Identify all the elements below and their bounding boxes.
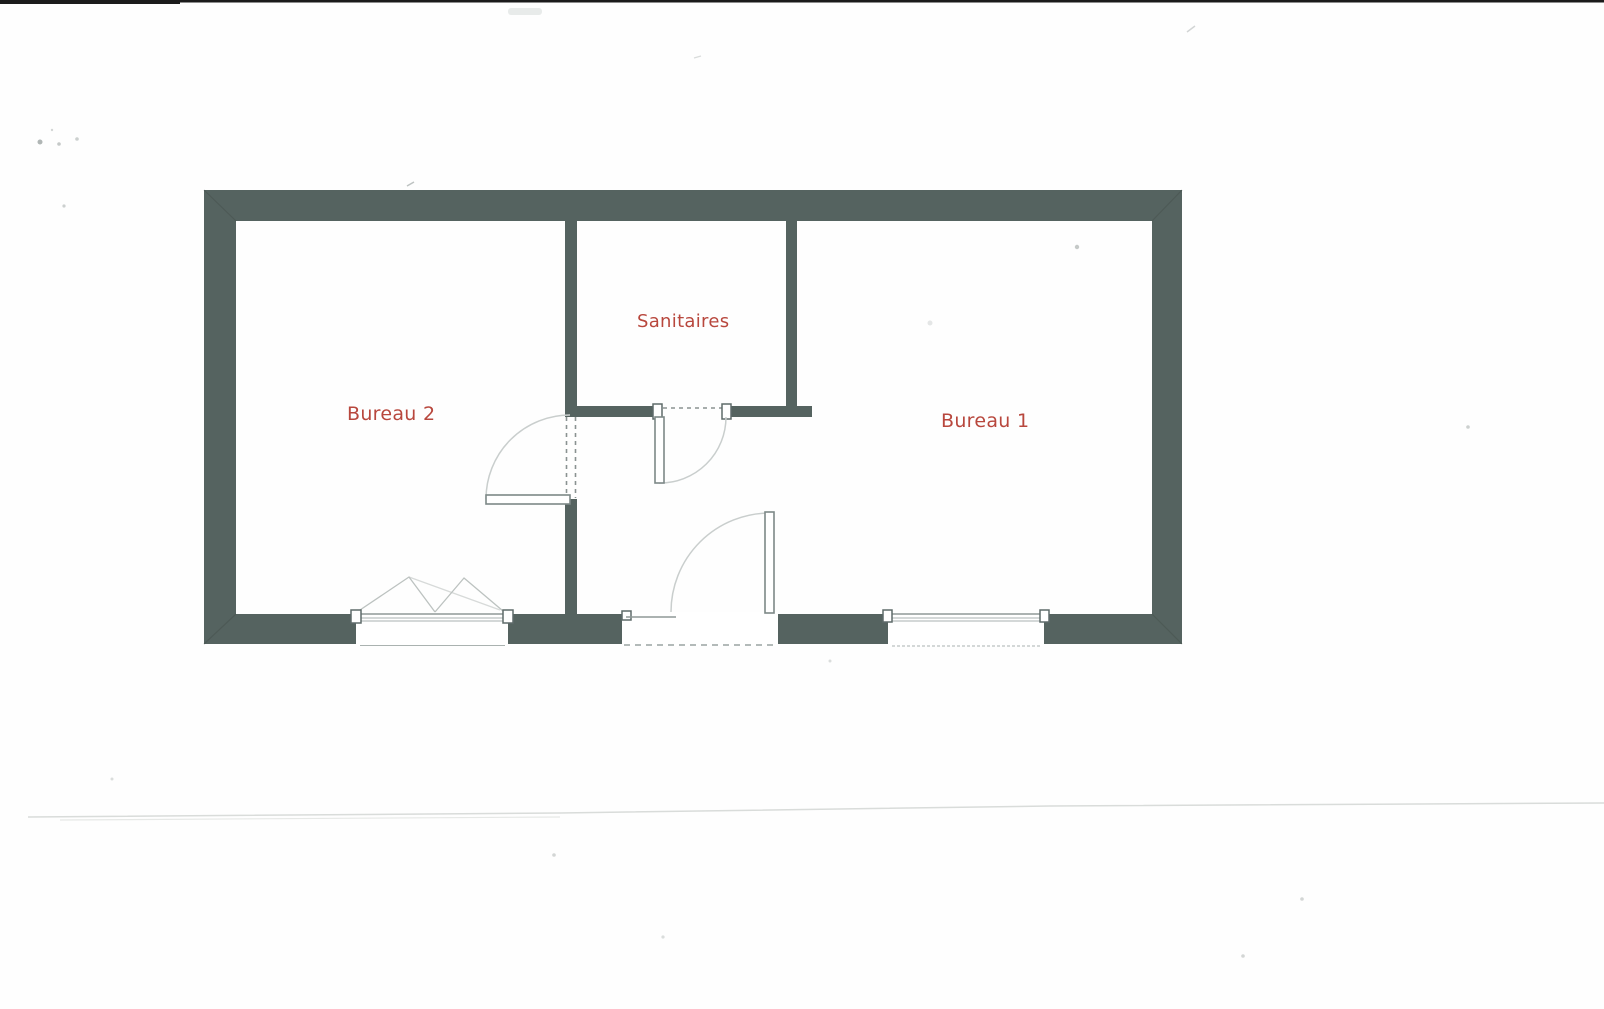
sanitaires-bottom-wall-right [726, 406, 812, 417]
entrance-door-leaf [765, 512, 774, 613]
window-jamb-right [1040, 610, 1049, 622]
scanned-page: Bureau 2 Sanitaires Bureau 1 [0, 0, 1604, 1009]
interior-wall-left-lower [565, 499, 577, 614]
entrance-door-swing-arc [671, 513, 770, 612]
sanitaires-door-leaf [655, 417, 664, 483]
entrance-jamb-left [622, 611, 631, 620]
scan-artifacts [0, 0, 1604, 958]
bureau-2-door-swing-arc [486, 415, 570, 499]
room-label-bureau-1: Bureau 1 [941, 410, 1029, 432]
sanitaires-door [653, 404, 731, 483]
floor-plan-drawing [0, 0, 1604, 1009]
room-label-sanitaires: Sanitaires [637, 311, 729, 332]
bottom-wall-openings [356, 612, 1044, 646]
sanitaires-right-wall [786, 221, 797, 417]
window-jamb-right [503, 610, 513, 623]
interior-wall-left-upper [565, 221, 577, 416]
sanitaires-door-swing-arc [659, 417, 726, 483]
room-label-bureau-2: Bureau 2 [347, 403, 435, 425]
window-jamb-left [883, 610, 892, 622]
sanitaires-door-jamb-right [722, 404, 731, 419]
sanitaires-bottom-wall-left [565, 406, 659, 417]
window-jamb-left [351, 610, 361, 623]
bureau-2-door [486, 415, 576, 504]
bureau-2-door-leaf [486, 495, 570, 504]
